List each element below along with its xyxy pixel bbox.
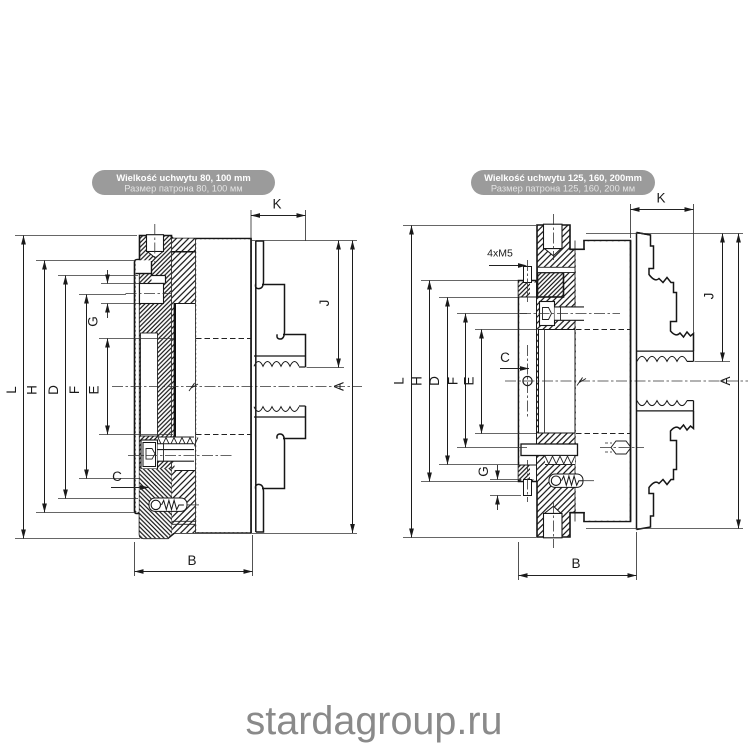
- svg-text:L: L: [4, 386, 19, 394]
- svg-text:J: J: [702, 293, 717, 300]
- svg-text:B: B: [571, 556, 580, 571]
- svg-text:Размер патрона 80, 100 мм: Размер патрона 80, 100 мм: [124, 184, 242, 194]
- svg-text:G: G: [86, 316, 101, 327]
- svg-text:F: F: [446, 377, 461, 385]
- svg-text:F: F: [67, 386, 82, 394]
- svg-text:Wielkość uchwytu 80, 100 mm: Wielkość uchwytu 80, 100 mm: [116, 172, 250, 183]
- svg-text:A: A: [718, 376, 733, 385]
- svg-text:H: H: [25, 385, 40, 395]
- svg-text:A: A: [332, 382, 347, 391]
- svg-text:C: C: [112, 469, 122, 484]
- svg-text:B: B: [187, 553, 196, 568]
- svg-text:4xM5: 4xM5: [487, 248, 513, 260]
- svg-text:D: D: [427, 376, 442, 386]
- svg-text:K: K: [272, 197, 281, 212]
- svg-text:K: K: [656, 191, 665, 206]
- svg-text:G: G: [476, 466, 491, 477]
- svg-text:Размер патрона 125, 160, 200 м: Размер патрона 125, 160, 200 мм: [491, 184, 635, 194]
- svg-text:H: H: [410, 376, 425, 386]
- svg-text:Wielkość uchwytu 125, 160, 200: Wielkość uchwytu 125, 160, 200mm: [484, 172, 642, 183]
- svg-text:E: E: [462, 376, 477, 385]
- svg-text:E: E: [87, 385, 102, 394]
- svg-text:J: J: [317, 300, 332, 307]
- svg-text:stardagroup.ru: stardagroup.ru: [246, 699, 503, 743]
- svg-text:L: L: [392, 377, 407, 385]
- svg-text:D: D: [46, 385, 61, 395]
- svg-text:C: C: [500, 350, 510, 365]
